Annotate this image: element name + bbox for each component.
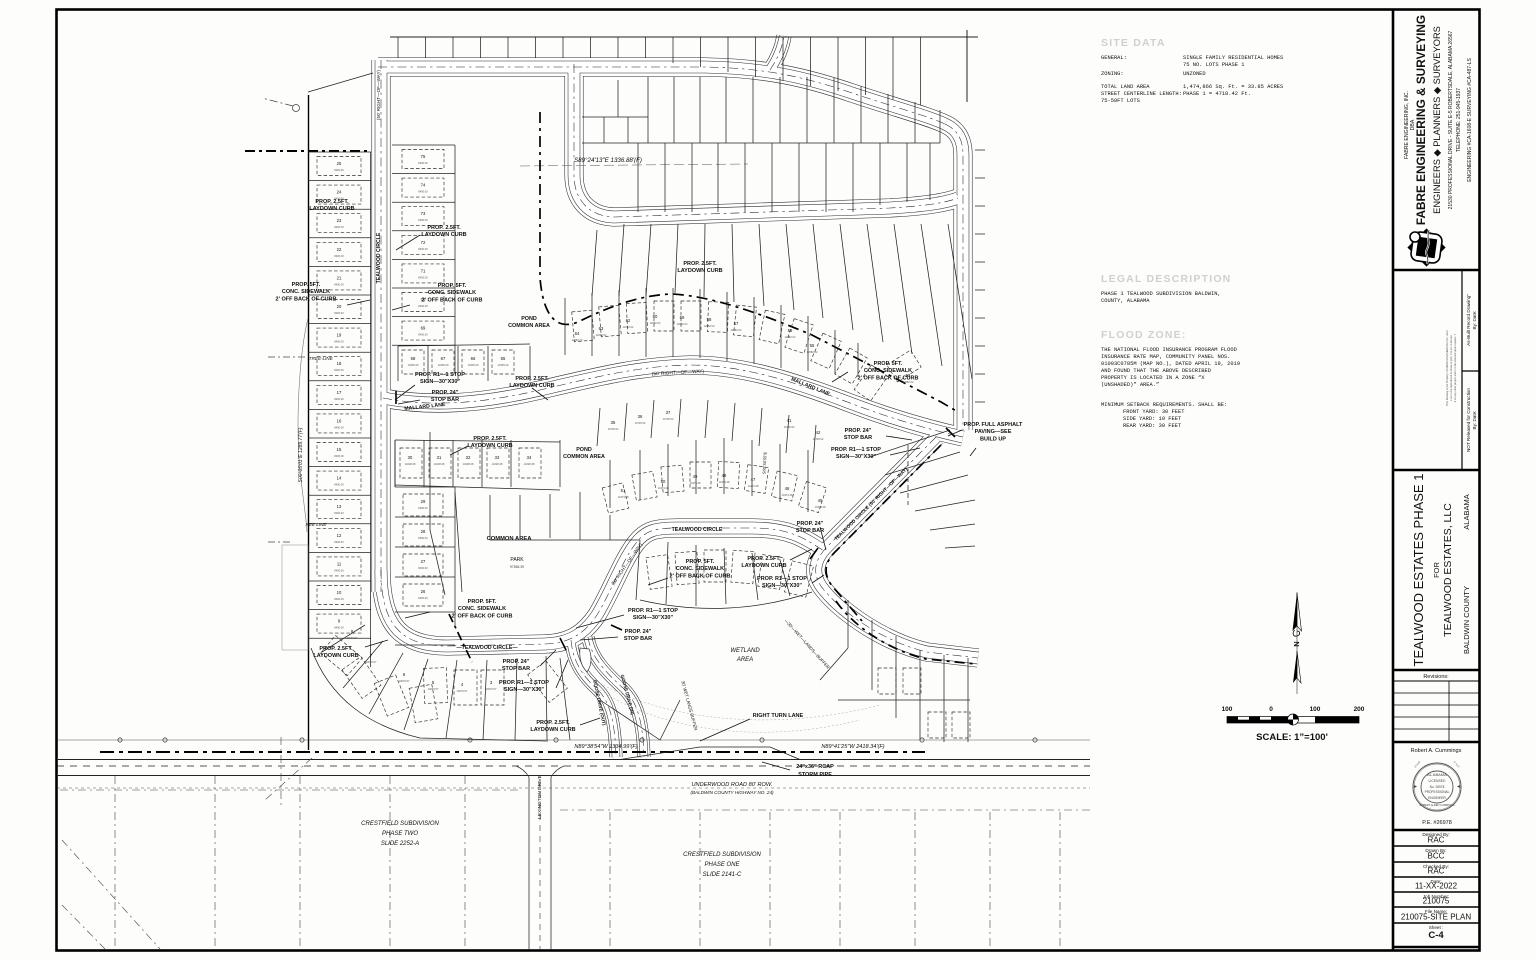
svg-text:8400.00: 8400.00: [334, 311, 344, 315]
svg-text:2' OFF BACK OF CURB: 2' OFF BACK OF CURB: [452, 613, 513, 619]
svg-text:SCALE: 1”=100': SCALE: 1”=100': [1256, 732, 1328, 743]
svg-text:COUNTY, ALABAMA: COUNTY, ALABAMA: [1101, 298, 1150, 304]
svg-text:TOTAL LAND AREA: TOTAL LAND AREA: [1101, 84, 1150, 90]
svg-text:LAYDOWN CURB: LAYDOWN CURB: [530, 727, 575, 733]
svg-text:THE NATIONAL FLOOD INSURANCE P: THE NATIONAL FLOOD INSURANCE PROGRAM FLO…: [1101, 347, 1237, 353]
svg-text:SIGN—30"X30": SIGN—30"X30": [420, 379, 460, 385]
svg-text:69: 69: [421, 326, 426, 331]
svg-text:24"x36" RCAP: 24"x36" RCAP: [796, 764, 834, 770]
svg-text:s not to be reproduced in whol: s not to be reproduced in whole or part.…: [1449, 335, 1453, 401]
svg-text:PROPERTY IS LOCATED IN A ZONE: PROPERTY IS LOCATED IN A ZONE “X: [1101, 375, 1205, 381]
svg-text:28: 28: [421, 529, 426, 534]
svg-text:PHASE ONE: PHASE ONE: [704, 862, 740, 868]
svg-text:SLIDE 2141-C: SLIDE 2141-C: [703, 872, 742, 878]
svg-text:P.E. #26978: P.E. #26978: [1422, 820, 1452, 826]
svg-text:PROP. R1—1 STOP: PROP. R1—1 STOP: [415, 372, 465, 378]
svg-text:8400.00: 8400.00: [334, 254, 344, 258]
svg-text:31: 31: [437, 455, 442, 460]
svg-text:37: 37: [666, 410, 671, 415]
svg-text:REE LINE: REE LINE: [306, 522, 328, 527]
svg-text:PROP. 2.5FT.: PROP. 2.5FT.: [536, 720, 570, 726]
svg-text:PARK: PARK: [510, 557, 524, 563]
svg-text:8400.00: 8400.00: [418, 596, 428, 600]
svg-text:PHASE 1 TEALWOOD SUBDIVISION B: PHASE 1 TEALWOOD SUBDIVISION BALDWIN,: [1101, 291, 1221, 297]
svg-text:20: 20: [337, 304, 342, 309]
svg-text:10736.52: 10736.52: [608, 427, 619, 431]
svg-text:10335.29: 10335.29: [408, 363, 419, 367]
svg-text:8400.00: 8400.00: [334, 454, 344, 458]
svg-text:FRONT YARD: 30 FEET: FRONT YARD: 30 FEET: [1123, 409, 1185, 415]
svg-text:14373.48: 14373.48: [618, 495, 629, 499]
svg-text:8400.00: 8400.00: [334, 597, 344, 601]
svg-text:RIGHT TURN LANE: RIGHT TURN LANE: [753, 713, 804, 719]
svg-text:8400.00: 8400.00: [334, 568, 344, 572]
svg-text:STOP BAR: STOP BAR: [844, 435, 872, 441]
svg-text:27: 27: [421, 559, 426, 564]
svg-text:13228.28: 13228.28: [434, 462, 445, 466]
svg-text:COMMON AREA: COMMON AREA: [563, 454, 605, 460]
svg-text:FABRE ENGINEERING & SURVEYING: FABRE ENGINEERING & SURVEYING: [1414, 15, 1428, 225]
svg-text:8400.00: 8400.00: [418, 333, 428, 337]
svg-text:8400.00: 8400.00: [418, 304, 428, 308]
svg-text:10736.52: 10736.52: [813, 437, 824, 441]
svg-text:13228.28: 13228.28: [463, 462, 474, 466]
svg-text:75 NO. LOTS PHASE 1: 75 NO. LOTS PHASE 1: [1183, 62, 1244, 68]
svg-text:14373.48: 14373.48: [658, 486, 669, 490]
svg-text:8400.00: 8400.00: [418, 218, 428, 222]
svg-text:TEALWOOD ESTATES, LLC: TEALWOOD ESTATES, LLC: [1442, 503, 1454, 637]
svg-text:60: 60: [653, 314, 658, 319]
svg-text:FOR: FOR: [1432, 562, 1441, 578]
svg-text:11-XX-2022: 11-XX-2022: [1415, 882, 1458, 891]
svg-text:C-4: C-4: [1428, 930, 1444, 941]
svg-text:CONC. SIDEWALK: CONC. SIDEWALK: [428, 290, 476, 296]
svg-text:d on any other project and is: d on any other project and is to be retu…: [1453, 333, 1457, 402]
svg-text:SIGN—30"X30": SIGN—30"X30": [504, 687, 544, 693]
svg-text:42: 42: [816, 430, 821, 435]
svg-text:8400.00: 8400.00: [334, 511, 344, 515]
svg-text:RAC: RAC: [1428, 867, 1445, 876]
svg-text:10335.29: 10335.29: [498, 363, 509, 367]
svg-text:11: 11: [337, 561, 342, 566]
svg-text:LAYDOWN CURB: LAYDOWN CURB: [421, 232, 466, 238]
svg-text:49: 49: [693, 474, 698, 479]
svg-text:ENGINEER: ENGINEER: [1428, 796, 1446, 800]
svg-text:ENGINEERS ◆ PLANNERS ◆ SURVEYO: ENGINEERS ◆ PLANNERS ◆ SURVEYORS: [1432, 26, 1442, 214]
svg-text:100: 100: [1310, 706, 1321, 713]
svg-text:STOP BAR: STOP BAR: [624, 636, 652, 642]
svg-text:10076.57: 10076.57: [347, 636, 358, 640]
svg-text:10736.52: 10736.52: [635, 421, 646, 425]
svg-text:PROP. R1—1 STOP: PROP. R1—1 STOP: [499, 680, 549, 686]
svg-text:46: 46: [785, 486, 790, 491]
svg-text:8400.00: 8400.00: [418, 566, 428, 570]
svg-text:10076.57: 10076.57: [486, 687, 497, 691]
svg-text:PROP. 24": PROP. 24": [503, 659, 530, 665]
svg-text:AREA: AREA: [736, 657, 753, 663]
svg-text:N89°41'25"W 2418.34'(F): N89°41'25"W 2418.34'(F): [821, 744, 884, 750]
svg-text:01003C0785M (MAP NO.), DATED A: 01003C0785M (MAP NO.), DATED APRIL 19, 2…: [1101, 361, 1240, 367]
svg-text:LAYDOWN CURB: LAYDOWN CURB: [677, 268, 722, 274]
svg-text:24: 24: [337, 190, 342, 195]
svg-text:CONC. SIDEWALK: CONC. SIDEWALK: [458, 606, 506, 612]
svg-text:58: 58: [707, 317, 712, 322]
svg-text:97565.39: 97565.39: [510, 565, 524, 569]
svg-text:S89°24'13"E 1336.88'(F): S89°24'13"E 1336.88'(F): [574, 157, 642, 164]
svg-text:65: 65: [501, 356, 506, 361]
svg-text:LICENSED: LICENSED: [1429, 779, 1447, 783]
svg-text:55: 55: [810, 343, 815, 348]
svg-text:19: 19: [337, 333, 342, 338]
svg-text:71: 71: [421, 268, 426, 273]
svg-text:No. 26978: No. 26978: [1430, 785, 1445, 789]
svg-text:ROBERT ALDEN CUMMINGS: ROBERT ALDEN CUMMINGS: [1419, 803, 1454, 807]
svg-text:21530 PROFESSIONAL DRIVE - SUI: 21530 PROFESSIONAL DRIVE - SUITE E-5 ROB…: [1448, 30, 1454, 209]
svg-text:13228.28: 13228.28: [405, 462, 416, 466]
svg-text:13228.28: 13228.28: [492, 462, 503, 466]
svg-text:PROP. 2.5FT.: PROP. 2.5FT.: [473, 436, 507, 442]
svg-text:TEALWOOD ESTATES PHASE 1: TEALWOOD ESTATES PHASE 1: [1411, 474, 1426, 667]
svg-text:12682.02: 12682.02: [623, 325, 634, 329]
svg-text:PROP. 24": PROP. 24": [797, 521, 824, 527]
svg-text:By: Date:: By: Date:: [1472, 411, 1477, 430]
svg-text:PROP. 5FT.: PROP. 5FT.: [292, 282, 321, 288]
svg-text:PROP. FULL ASPHALT: PROP. FULL ASPHALT: [964, 422, 1023, 428]
svg-text:PROP. 2.5FT.: PROP. 2.5FT.: [315, 199, 349, 205]
svg-text:18: 18: [337, 361, 342, 366]
svg-text:(50' RIGHT—OF—WAY): (50' RIGHT—OF—WAY): [376, 69, 381, 120]
svg-text:21: 21: [337, 275, 342, 280]
svg-text:RAC: RAC: [1428, 836, 1445, 845]
svg-text:SITE DATA: SITE DATA: [1101, 37, 1166, 49]
svg-text:66: 66: [471, 356, 476, 361]
svg-text:12682.02: 12682.02: [677, 322, 688, 326]
svg-text:PROP. 24": PROP. 24": [625, 629, 652, 635]
svg-text:N: N: [1292, 641, 1301, 646]
svg-text:TELEPHONE: 251-945-1937: TELEPHONE: 251-945-1937: [1456, 88, 1462, 152]
svg-text:BCC: BCC: [1428, 852, 1445, 861]
svg-text:62: 62: [626, 318, 631, 323]
svg-text:8400.00: 8400.00: [334, 425, 344, 429]
svg-text:8400.00: 8400.00: [334, 626, 344, 630]
svg-text:10076.57: 10076.57: [457, 689, 468, 693]
svg-text:63: 63: [599, 326, 604, 331]
svg-text:PROP. 5FT.: PROP. 5FT.: [468, 599, 497, 605]
svg-text:33: 33: [495, 455, 500, 460]
svg-text:SLIDE 2252-A: SLIDE 2252-A: [381, 841, 419, 847]
svg-text:64: 64: [575, 331, 580, 336]
svg-text:26: 26: [421, 589, 426, 594]
svg-text:LEXINGTON DRIVE: LEXINGTON DRIVE: [537, 775, 543, 819]
svg-text:2' OFF BACK OF CURB: 2' OFF BACK OF CURB: [858, 375, 919, 381]
svg-text:TEALWOOD CIRCLE: TEALWOOD CIRCLE: [376, 232, 382, 283]
svg-text:PHASE 1 = 4718.42 Ft.: PHASE 1 = 4718.42 Ft.: [1183, 91, 1251, 97]
svg-text:CONC. SIDEWALK: CONC. SIDEWALK: [864, 368, 912, 374]
svg-text:8400.00: 8400.00: [418, 536, 428, 540]
svg-text:Revisions:: Revisions:: [1423, 674, 1449, 680]
svg-text:34: 34: [527, 455, 532, 460]
svg-text:10335.29: 10335.29: [468, 363, 479, 367]
svg-text:210075-SITE PLAN: 210075-SITE PLAN: [1401, 913, 1471, 922]
svg-text:PROP. 24": PROP. 24": [845, 428, 872, 434]
svg-text:8400.00: 8400.00: [418, 506, 428, 510]
svg-text:PAVING—SEE: PAVING—SEE: [975, 429, 1012, 435]
svg-text:LAYDOWN CURB: LAYDOWN CURB: [313, 653, 358, 659]
svg-text:67: 67: [441, 356, 446, 361]
svg-text:PROP. 5FT.: PROP. 5FT.: [438, 283, 467, 289]
svg-text:8400.00: 8400.00: [418, 161, 428, 165]
svg-text:10736.52: 10736.52: [663, 417, 674, 421]
svg-text:CONC. SIDEWALK: CONC. SIDEWALK: [282, 289, 330, 295]
svg-text:10076.57: 10076.57: [399, 679, 410, 683]
svg-text:LAYDOWN CURB: LAYDOWN CURB: [467, 443, 512, 449]
svg-text:13228.28: 13228.28: [524, 462, 535, 466]
svg-text:BUILD UP: BUILD UP: [980, 436, 1006, 442]
svg-text:SIDE YARD: 10 FEET: SIDE YARD: 10 FEET: [1123, 416, 1182, 422]
svg-text:CONC. SIDEWALK: CONC. SIDEWALK: [676, 566, 724, 572]
svg-text:-TREE-LINE: -TREE-LINE: [307, 356, 333, 361]
svg-text:LAYDOWN CURB: LAYDOWN CURB: [309, 206, 354, 212]
svg-text:30: 30: [408, 455, 413, 460]
svg-text:SINGLE FAMILY RESIDENTIAL HOME: SINGLE FAMILY RESIDENTIAL HOMES: [1183, 55, 1283, 61]
svg-text:COMMON AREA: COMMON AREA: [487, 536, 533, 542]
svg-text:8400.00: 8400.00: [418, 247, 428, 251]
svg-text:PROP. R1—1 STOP: PROP. R1—1 STOP: [628, 608, 678, 614]
svg-text:10: 10: [337, 590, 342, 595]
svg-text:14373.48: 14373.48: [748, 484, 759, 488]
svg-text:32: 32: [466, 455, 471, 460]
svg-text:STOP BAR: STOP BAR: [431, 397, 459, 403]
svg-text:PHASE TWO: PHASE TWO: [382, 831, 418, 837]
svg-text:PROP. 5FT.: PROP. 5FT.: [686, 559, 715, 565]
svg-text:PROP. 24": PROP. 24": [432, 390, 459, 396]
svg-text:73: 73: [421, 211, 426, 216]
svg-text:8400.00: 8400.00: [334, 225, 344, 229]
svg-text:UNZONED: UNZONED: [1183, 71, 1206, 77]
svg-text:PROP. 2.5FT.: PROP. 2.5FT.: [515, 376, 549, 382]
svg-text:74: 74: [421, 183, 426, 188]
svg-text:WETLAND: WETLAND: [730, 648, 760, 654]
svg-text:8400.00: 8400.00: [334, 540, 344, 544]
svg-text:PROP. 2.5FT.: PROP. 2.5FT.: [683, 261, 717, 267]
svg-text:1,474,866 Sq. Ft. = 33.85 ACR: 1,474,866 Sq. Ft. = 33.85 ACRES: [1183, 84, 1283, 90]
svg-text:75: 75: [421, 154, 426, 159]
svg-text:As-Built Record Drawing”: As-Built Record Drawing”: [1466, 294, 1471, 346]
svg-text:ENGINEERING #CA-1608-E SU: ENGINEERING #CA-1608-E SURVEYING #CA-487…: [1467, 58, 1473, 182]
svg-text:8400.00: 8400.00: [334, 168, 344, 172]
svg-text:POND: POND: [576, 447, 592, 453]
svg-text:LAYDOWN CURB: LAYDOWN CURB: [741, 563, 786, 569]
svg-text:100: 100: [1222, 706, 1233, 713]
svg-text:PROP. 2.5FT.: PROP. 2.5FT.: [427, 225, 461, 231]
svg-text:14373.48: 14373.48: [782, 493, 793, 497]
svg-text:10335.29: 10335.29: [438, 363, 449, 367]
svg-text:35: 35: [611, 420, 616, 425]
svg-text:REAR YARD: 30 FEET: REAR YARD: 30 FEET: [1123, 423, 1182, 429]
svg-text:SIGN—30”X30": SIGN—30”X30": [633, 615, 674, 621]
svg-text:ZONING:: ZONING:: [1101, 71, 1124, 77]
svg-text:29: 29: [421, 499, 426, 504]
svg-text:STREET CENTERLINE LENGTH:: STREET CENTERLINE LENGTH:: [1101, 91, 1182, 97]
svg-text:2' OFF BACK OF CURB: 2' OFF BACK OF CURB: [422, 297, 483, 303]
svg-text:S00°05'01"E 1289.77'(F): S00°05'01"E 1289.77'(F): [298, 427, 304, 482]
svg-text:ALABAMA: ALABAMA: [1462, 494, 1471, 529]
svg-text:72: 72: [421, 240, 426, 245]
svg-text:FLOOD ZONE:: FLOOD ZONE:: [1101, 329, 1187, 341]
svg-text:AL ABAMA: AL ABAMA: [1427, 772, 1447, 777]
svg-text:68: 68: [411, 356, 416, 361]
svg-text:STOP BAR: STOP BAR: [502, 666, 530, 672]
svg-text:—TEALWOOD CIRCLE—: —TEALWOOD CIRCLE—: [456, 645, 518, 651]
svg-text:210075: 210075: [1423, 897, 1450, 906]
svg-text:NOT Released for Construction: NOT Released for Construction: [1466, 388, 1471, 452]
svg-text:Robert A. Cummings: Robert A. Cummings: [1411, 748, 1462, 754]
svg-text:25: 25: [337, 161, 342, 166]
svg-text:12: 12: [337, 533, 342, 538]
svg-text:SIGN—30"X30": SIGN—30"X30": [836, 454, 876, 460]
svg-text:SIGN—30"X30": SIGN—30"X30": [762, 583, 802, 589]
svg-text:AND FOUND THAT THE ABOVE DESCR: AND FOUND THAT THE ABOVE DESCRIBED: [1101, 368, 1211, 374]
svg-text:8400.00: 8400.00: [334, 340, 344, 344]
svg-text:16: 16: [337, 418, 342, 423]
svg-text:59: 59: [680, 315, 685, 320]
svg-text:MINIMUM SETBACK REQUIREMENTS.: MINIMUM SETBACK REQUIREMENTS. SHALL BE:: [1101, 402, 1227, 408]
svg-text:36: 36: [638, 414, 643, 419]
svg-text:8400.00: 8400.00: [418, 275, 428, 279]
svg-text:13: 13: [337, 504, 342, 509]
svg-text:8400.00: 8400.00: [334, 282, 344, 286]
svg-text:TEALWOOD CIRCLE: TEALWOOD CIRCLE: [672, 527, 723, 533]
svg-text:0: 0: [1269, 706, 1273, 713]
svg-text:10076.57: 10076.57: [366, 660, 377, 664]
svg-text:12682.02: 12682.02: [785, 335, 796, 339]
svg-text:CRESTFIELD SUBDIVISION: CRESTFIELD SUBDIVISION: [683, 852, 761, 858]
svg-text:COMMON AREA: COMMON AREA: [508, 323, 550, 329]
svg-text:200: 200: [1354, 706, 1365, 713]
svg-text:(UNSHADED)” AREA.”: (UNSHADED)” AREA.”: [1101, 382, 1159, 388]
svg-text:12682.02: 12682.02: [704, 324, 715, 328]
svg-text:8400.00: 8400.00: [334, 483, 344, 487]
svg-text:8400.00: 8400.00: [334, 368, 344, 372]
svg-text:PROP. R1—1 STOP: PROP. R1—1 STOP: [757, 576, 807, 582]
svg-text:2' OFF BACK OF CURB: 2' OFF BACK OF CURB: [670, 573, 731, 579]
svg-text:POND: POND: [521, 316, 537, 322]
svg-text:STORM PIPE: STORM PIPE: [798, 772, 832, 778]
svg-text:10736.52: 10736.52: [784, 425, 795, 429]
svg-text:10076.57: 10076.57: [428, 687, 439, 691]
svg-text:STOP BAR: STOP BAR: [796, 528, 824, 534]
svg-text:This Drawing is the Property o: This Drawing is the Property of FABRE EN…: [1445, 330, 1449, 406]
svg-text:8400.00: 8400.00: [334, 397, 344, 401]
svg-text:PROP. 2.5FT.: PROP. 2.5FT.: [747, 556, 781, 562]
svg-text:14: 14: [337, 476, 342, 481]
svg-text:BALDWIN COUNTY: BALDWIN COUNTY: [1462, 586, 1471, 654]
svg-text:N89°38'54"W 1334.99'(F): N89°38'54"W 1334.99'(F): [574, 744, 637, 750]
svg-text:PROP. 5FT.: PROP. 5FT.: [874, 361, 903, 367]
svg-text:2' OFF BACK OF CURB: 2' OFF BACK OF CURB: [276, 296, 337, 302]
svg-text:12682.02: 12682.02: [807, 350, 818, 354]
svg-text:PROP. R1—1 STOP: PROP. R1—1 STOP: [831, 447, 881, 453]
svg-text:22: 22: [337, 247, 342, 252]
svg-text:UNDERWOOD ROAD 80' ROW.: UNDERWOOD ROAD 80' ROW.: [692, 782, 773, 788]
svg-text:By: Date:: By: Date:: [1472, 311, 1477, 330]
svg-text:15: 15: [337, 447, 342, 452]
svg-text:(BALDWIN COUNTY HIGHWAY NO. 24: (BALDWIN COUNTY HIGHWAY NO. 24): [690, 790, 774, 795]
svg-text:PROFESSIONAL: PROFESSIONAL: [1425, 790, 1450, 794]
svg-text:14373.48: 14373.48: [690, 481, 701, 485]
svg-text:75-50FT LOTS: 75-50FT LOTS: [1101, 98, 1140, 104]
svg-text:INSURANCE RATE MAP, COMMUNITY: INSURANCE RATE MAP, COMMUNITY PANEL NOS.: [1101, 354, 1230, 360]
svg-text:17: 17: [337, 390, 342, 395]
svg-text:LEGAL DESCRIPTION: LEGAL DESCRIPTION: [1101, 273, 1231, 285]
svg-text:23: 23: [337, 218, 342, 223]
svg-text:12682.02: 12682.02: [731, 328, 742, 332]
svg-text:PROP. 2.5FT.: PROP. 2.5FT.: [319, 646, 353, 652]
svg-text:12682.02: 12682.02: [650, 321, 661, 325]
svg-text:47: 47: [751, 477, 756, 482]
svg-text:41: 41: [787, 418, 792, 423]
svg-text:50: 50: [661, 479, 666, 484]
svg-text:GENERAL:: GENERAL:: [1101, 55, 1127, 61]
svg-text:CRESTFIELD SUBDIVISION: CRESTFIELD SUBDIVISION: [361, 821, 439, 827]
svg-text:8400.00: 8400.00: [418, 190, 428, 194]
